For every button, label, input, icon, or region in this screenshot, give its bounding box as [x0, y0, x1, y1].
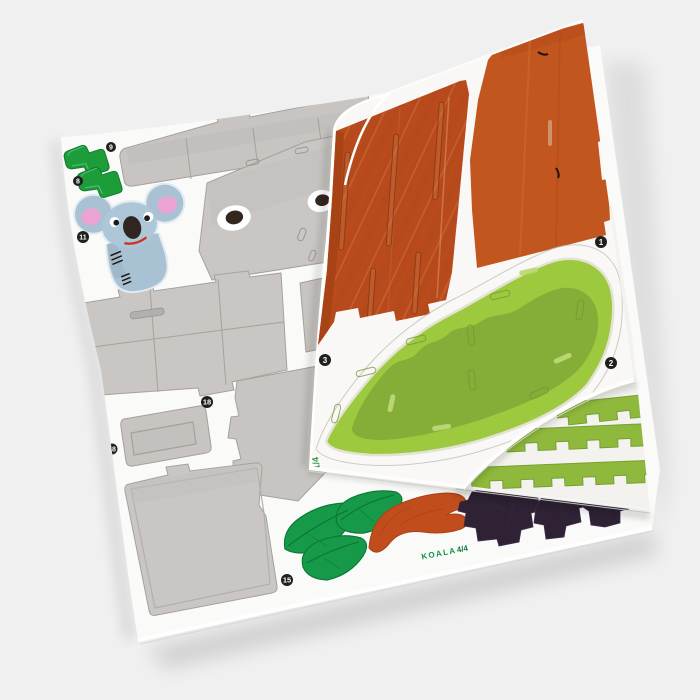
svg-text:15: 15	[283, 576, 291, 585]
svg-text:1: 1	[599, 238, 604, 247]
svg-text:8: 8	[76, 179, 80, 186]
svg-text:18: 18	[203, 398, 211, 407]
svg-text:2: 2	[609, 359, 614, 368]
svg-text:9: 9	[109, 145, 113, 152]
svg-text:11: 11	[79, 235, 87, 242]
svg-text:3: 3	[323, 356, 328, 365]
